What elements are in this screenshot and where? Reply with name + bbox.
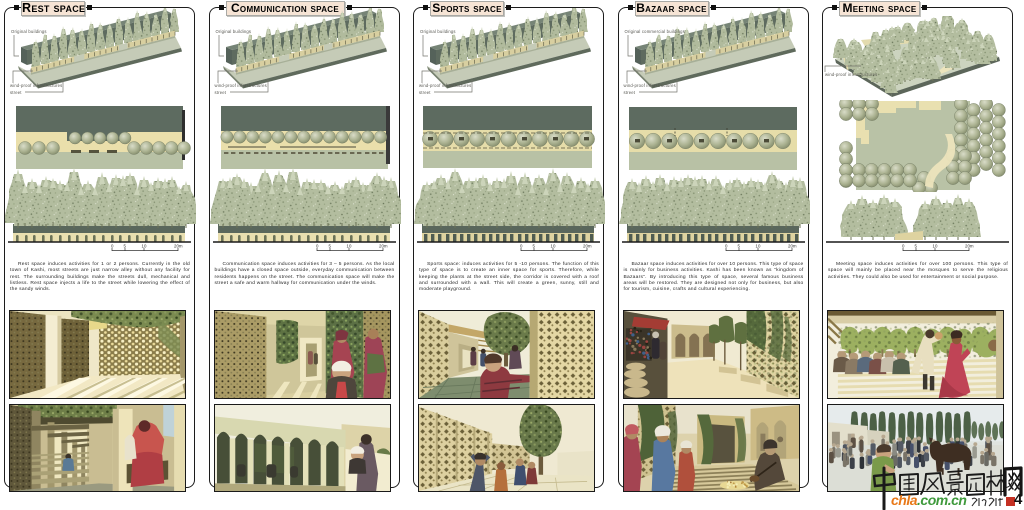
- svg-text:0: 0: [316, 244, 319, 249]
- svg-text:5: 5: [737, 244, 740, 249]
- svg-text:5: 5: [915, 244, 918, 249]
- svg-text:20m: 20m: [788, 244, 797, 249]
- svg-text:20m: 20m: [379, 244, 388, 249]
- svg-text:10: 10: [142, 244, 147, 249]
- svg-text:10: 10: [933, 244, 938, 249]
- svg-text:20m: 20m: [174, 244, 183, 249]
- svg-text:20m: 20m: [583, 244, 592, 249]
- svg-text:10: 10: [551, 244, 556, 249]
- svg-text:10: 10: [755, 244, 760, 249]
- svg-text:20m: 20m: [965, 244, 974, 249]
- svg-text:5: 5: [533, 244, 536, 249]
- svg-text:10: 10: [346, 244, 351, 249]
- svg-text:0: 0: [902, 244, 905, 249]
- svg-text:0: 0: [111, 244, 114, 249]
- svg-text:5: 5: [328, 244, 331, 249]
- svg-text:0: 0: [725, 244, 728, 249]
- svg-text:5: 5: [124, 244, 127, 249]
- svg-text:0: 0: [520, 244, 523, 249]
